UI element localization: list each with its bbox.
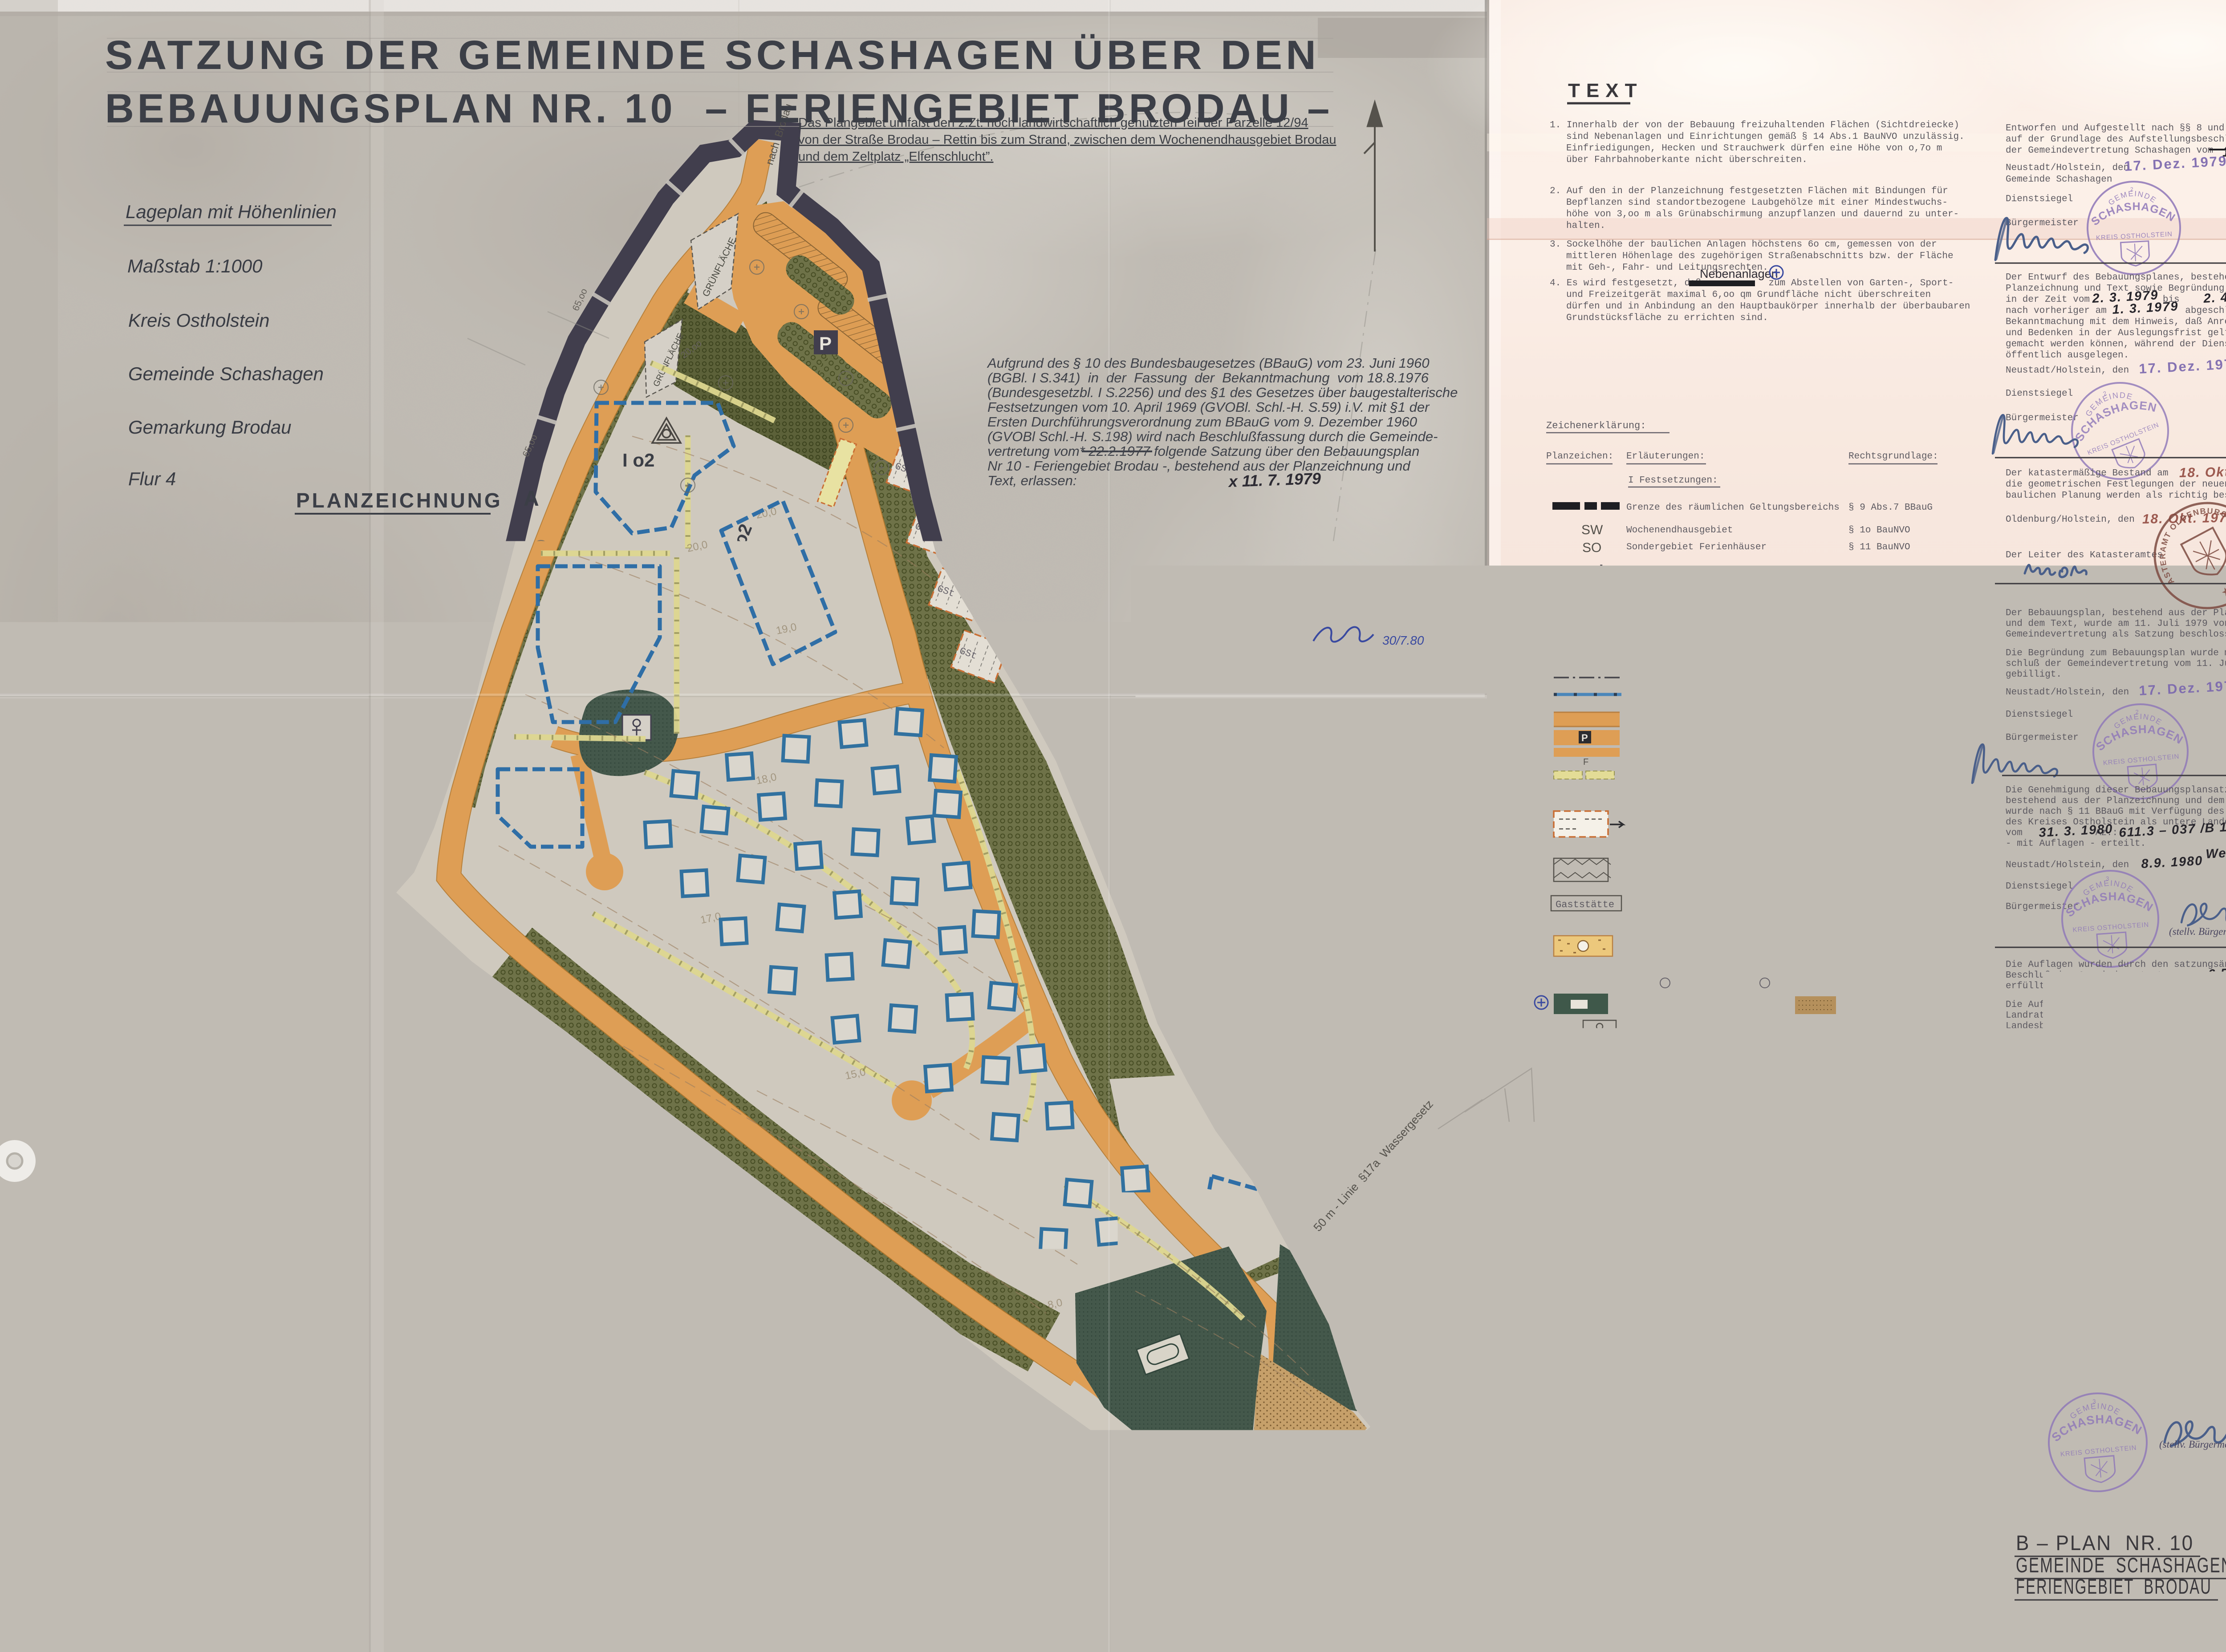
svg-text:von der Straße Brodau – Rettin: von der Straße Brodau – Rettin bis zum S… bbox=[798, 133, 1336, 147]
svg-text:III Darstellungen ohne Normcha: III Darstellungen ohne Normcharakter: bbox=[1627, 1319, 1835, 1329]
svg-text:§ 16 BauNVO: § 16 BauNVO bbox=[1848, 580, 1910, 590]
svg-text:7: 7 bbox=[725, 1181, 731, 1193]
svg-text:Gemeinde Schashagen: Gemeinde Schashagen bbox=[2006, 1189, 2112, 1200]
svg-text:FERIENGEBIET BRODAU: FERIENGEBIET BRODAU bbox=[2016, 1575, 2212, 1598]
svg-text:Straßenverkehrsfläche: Straßenverkehrsfläche bbox=[1626, 715, 1744, 725]
svg-text:12: 12 bbox=[914, 1309, 926, 1321]
svg-text:II Kennzeichnungen und nachric: II Kennzeichnungen und nachrichtliche Üb… bbox=[1627, 1243, 1902, 1254]
svg-text:FESTSETZUNG IM B-PLAN NR.6: FESTSETZUNG IM B-PLAN NR.6 bbox=[539, 1050, 728, 1064]
svg-text:3,5o: 3,5o bbox=[791, 1500, 808, 1510]
svg-text:Gemeinde Schashagen: Gemeinde Schashagen bbox=[128, 363, 324, 384]
svg-text:Die Auflagenerfüllung wurde mi: Die Auflagenerfüllung wurde mit Verfügun… bbox=[2006, 1000, 2226, 1010]
svg-text:§ 9 Abs.1 (24)BBauG: § 9 Abs.1 (24)BBauG bbox=[1848, 865, 1955, 875]
svg-text:63: 63 bbox=[451, 949, 463, 961]
svg-text:- mit Auflagen - erteilt.: - mit Auflagen - erteilt. bbox=[2006, 839, 2146, 849]
svg-text:§ 9 Abs.1 (25)BBauG: § 9 Abs.1 (25)BBauG bbox=[1848, 1078, 1955, 1088]
svg-text:5o: 5o bbox=[703, 1423, 711, 1432]
svg-text:§ 9 Abs.1 (14)BBauG: § 9 Abs.1 (14)BBauG bbox=[1848, 938, 1955, 949]
svg-text:6: 6 bbox=[661, 1130, 666, 1142]
svg-text:Der Leiter des Katasteramtes: Der Leiter des Katasteramtes bbox=[2006, 550, 2163, 560]
svg-text:Bäume zu pflanzen: Bäume zu pflanzen bbox=[1626, 1106, 1722, 1116]
svg-text:C: C bbox=[530, 1482, 546, 1506]
svg-text:I o GR 60 qm: I o GR 60 qm bbox=[993, 1138, 1121, 1163]
svg-text:§ 9 Abs.1 (11)BBauG: § 9 Abs.1 (11)BBauG bbox=[1848, 817, 1955, 828]
svg-text:112: 112 bbox=[851, 803, 868, 815]
svg-text:4,8o: 4,8o bbox=[716, 1599, 726, 1617]
svg-text:Neustadt/Holstein, den: Neustadt/Holstein, den bbox=[2006, 1178, 2129, 1188]
svg-text:I: I bbox=[1599, 562, 1603, 579]
svg-text:und Bedenken in der Auslegungs: und Bedenken in der Auslegungsfrist gelt… bbox=[2006, 328, 2226, 338]
svg-text:Nebenanlagen: Nebenanlagen bbox=[1700, 267, 1778, 280]
svg-text:gemacht werden können, während: gemacht werden können, während der Diens… bbox=[2006, 339, 2226, 349]
svg-text:Bekanntmachung mit dem Hinweis: Bekanntmachung mit dem Hinweis, daß Anre… bbox=[2006, 317, 2226, 327]
svg-text:12: 12 bbox=[449, 934, 461, 946]
svg-text:Dienstsiegel: Dienstsiegel bbox=[2006, 881, 2073, 892]
svg-text:(bepflanzter Lärmschutzwall): (bepflanzter Lärmschutzwall) bbox=[1626, 1142, 1783, 1153]
svg-text:§ 22 BauNVO: § 22 BauNVO bbox=[1848, 647, 1910, 658]
svg-text:Baulinien: Baulinien bbox=[1626, 673, 1677, 683]
svg-text:zugunsten der Anlieger zu bela: zugunsten der Anlieger zu belastende bbox=[1626, 783, 1828, 793]
svg-text:und dem Text, wurde am 11. Jul: und dem Text, wurde am 11. Juli 1979 von… bbox=[2006, 619, 2226, 629]
svg-text:§ 1o BauNVO: § 1o BauNVO bbox=[1848, 597, 1910, 607]
svg-text:GR 6O qm: GR 6O qm bbox=[1570, 597, 1621, 609]
svg-text:erfordert wird: erfordert wird bbox=[1626, 922, 1705, 933]
svg-text:B – PLAN NR. 10: B – PLAN NR. 10 bbox=[2016, 1531, 2194, 1555]
svg-text:Neustadt/Holstein, den: Neustadt/Holstein, den bbox=[2006, 1051, 2129, 1062]
svg-text:TENNISPLATZ: TENNISPLATZ bbox=[1073, 1384, 1187, 1399]
svg-text:15o: 15o bbox=[565, 1423, 580, 1432]
svg-text:Ersten Durchführungsverordnung: Ersten Durchführungsverordnung zum BBauG… bbox=[987, 414, 1417, 430]
svg-text:Gemarkung Brodau: Gemarkung Brodau bbox=[128, 417, 292, 438]
svg-text:§ 23 BauNVO: § 23 BauNVO bbox=[1848, 682, 1910, 692]
svg-text:Die Begründung zum Bebauungspl: Die Begründung zum Bebauungsplan wurde m… bbox=[2006, 648, 2226, 658]
svg-text:A: A bbox=[529, 1340, 545, 1364]
svg-text:3: 3 bbox=[1327, 1466, 1333, 1478]
svg-text:Grünflächen: Grünflächen bbox=[1626, 1000, 1688, 1010]
svg-text:§ 9 Abs.1 (25)BBauG: § 9 Abs.1 (25)BBauG bbox=[1848, 1106, 1955, 1116]
svg-text:P: P bbox=[819, 333, 832, 354]
svg-text:4,5o: 4,5o bbox=[625, 1495, 642, 1505]
svg-text:5o: 5o bbox=[602, 1351, 611, 1360]
svg-text:erfüllt.: erfüllt. bbox=[2006, 981, 2051, 991]
svg-text:Die Bebauungsplansatzung, best: Die Bebauungsplansatzung, bestehend aus … bbox=[2006, 1154, 2226, 1164]
svg-text:Nr 10 - Feriengebiet Brodau -,: Nr 10 - Feriengebiet Brodau -, bestehend… bbox=[987, 458, 1411, 474]
svg-text:GASTSTÄTTE: GASTSTÄTTE bbox=[1179, 1246, 1262, 1259]
svg-text:SO: SO bbox=[562, 572, 629, 642]
svg-text:sind Nebenanlagen und Einricht: sind Nebenanlagen und Einrichtungen gemä… bbox=[1566, 132, 1965, 142]
svg-text:wurde nach § 11 BBauG mit Verf: wurde nach § 11 BBauG mit Verfügung des … bbox=[2006, 807, 2226, 817]
svg-text:I o2: I o2 bbox=[1221, 1205, 1251, 1225]
svg-text:8: 8 bbox=[787, 1228, 793, 1240]
svg-text:A: A bbox=[524, 487, 539, 511]
svg-text:(stellv. Bürgermeister): (stellv. Bürgermeister) bbox=[2169, 926, 2226, 937]
svg-text:die geometrischen Festlegungen: die geometrischen Festlegungen der neuen… bbox=[2006, 479, 2226, 490]
svg-text:FERIENHÄUSER: FERIENHÄUSER bbox=[556, 654, 672, 669]
svg-text:Neustadt/Holstein, den: Neustadt/Holstein, den bbox=[2006, 163, 2129, 173]
svg-text:12: 12 bbox=[722, 1167, 734, 1179]
svg-text:P: P bbox=[1581, 732, 1588, 743]
svg-text:Bürgermeister: Bürgermeister bbox=[2006, 733, 2079, 743]
svg-text:We|Ko: We|Ko bbox=[2206, 845, 2226, 861]
svg-text:PLANZEICHNUNG: PLANZEICHNUNG bbox=[296, 489, 503, 512]
svg-text:vorhandene Grundstücksgrenzen: vorhandene Grundstücksgrenzen bbox=[1625, 1364, 1788, 1374]
svg-text:halten.: halten. bbox=[1566, 221, 1605, 231]
svg-text:und dem Zeltplatz „Elfenschluc: und dem Zeltplatz „Elfenschlucht”. bbox=[798, 150, 993, 164]
svg-text:(stellv. Bürgermeister): (stellv. Bürgermeister) bbox=[2153, 1115, 2226, 1126]
svg-text:12: 12 bbox=[585, 1058, 597, 1070]
svg-text:F: F bbox=[1583, 757, 1588, 767]
svg-text:7,5o: 7,5o bbox=[624, 1509, 642, 1518]
svg-text:11: 11 bbox=[916, 1323, 927, 1335]
svg-text:Sichtdreieck: Sichtdreieck bbox=[1625, 1454, 1693, 1464]
svg-text:auf der Grundlage des Aufstell: auf der Grundlage des Aufstellungsbeschl… bbox=[2006, 134, 2226, 145]
svg-text:Dienstsiegel: Dienstsiegel bbox=[2006, 710, 2073, 720]
svg-text:§ 9 Abs.1 (9) BBauG: § 9 Abs.1 (9) BBauG bbox=[1848, 911, 1955, 921]
svg-text:7,5o: 7,5o bbox=[664, 1353, 682, 1363]
svg-text:Neustadt/Holstein, den: Neustadt/Holstein, den bbox=[2006, 860, 2129, 870]
svg-text:≥ 2ooo qm: ≥ 2ooo qm bbox=[1191, 1264, 1235, 1275]
svg-text:Ausgefertigt. Oldenburg i.H.,: Ausgefertigt. Oldenburg i.H., den 12.1.7… bbox=[199, 1338, 447, 1353]
svg-text:Katasteramt: Katasteramt bbox=[257, 1368, 325, 1382]
svg-text:12: 12 bbox=[989, 1456, 1001, 1468]
svg-text:4: 4 bbox=[588, 1072, 594, 1084]
svg-text:in Aussicht genommene Zuschnit: in Aussicht genommene Zuschnitte der Bau… bbox=[1625, 1378, 1912, 1388]
svg-text:Bürgermeister: Bürgermeister bbox=[2006, 413, 2079, 423]
svg-text:I o2: I o2 bbox=[510, 791, 541, 811]
svg-text:Gaststätte: Gaststätte bbox=[1556, 899, 1614, 910]
svg-text:5o m - Linie gemäß § 17a Wasse: 5o m - Linie gemäß § 17a Wassergesetz (E… bbox=[1631, 1270, 1984, 1280]
svg-text:(BGBl. I S.341) in der Fass: (BGBl. I S.341) in der Fassung der Bekan… bbox=[987, 370, 1429, 386]
svg-text:vertretung vom* 22.2.1977 folg: vertretung vom* 22.2.1977 folgende Satzu… bbox=[987, 443, 1419, 459]
svg-text:I o2: I o2 bbox=[622, 450, 654, 471]
svg-text:12: 12 bbox=[532, 1018, 544, 1030]
svg-text:Abgrenzung unterschiedlicher N: Abgrenzung unterschiedlicher Nutzung bbox=[1626, 1166, 1828, 1177]
svg-text:(M) Müllboxen (T) Trafosta: (M) Müllboxen (T) Trafostation bbox=[1656, 979, 1846, 990]
svg-text:Planzeichen:: Planzeichen: bbox=[1546, 451, 1613, 462]
svg-text:offene Bauweise: offene Bauweise bbox=[1626, 636, 1710, 646]
svg-text:mit der bewirkten Bekanntmachu: mit der bewirkten Bekanntmachung der Gen… bbox=[2006, 1315, 2226, 1325]
svg-text:1: 1 bbox=[1352, 231, 1357, 243]
svg-text:F: F bbox=[778, 1481, 785, 1493]
svg-text:3: 3 bbox=[535, 1032, 540, 1044]
svg-text:9: 9 bbox=[852, 1277, 858, 1289]
svg-text:Dienstsiegel: Dienstsiegel bbox=[2006, 1213, 2073, 1223]
svg-text:Gemeinde Schashagen: Gemeinde Schashagen bbox=[2006, 175, 2112, 185]
svg-text:Dienstsiegel: Dienstsiegel bbox=[2006, 194, 2073, 204]
svg-text:Flächen für Stellplätze oder G: Flächen für Stellplätze oder Garagen bbox=[1626, 817, 1828, 828]
svg-text:§ 9 Abs.1 (11)BBauG: § 9 Abs.1 (11)BBauG bbox=[1848, 732, 1955, 742]
svg-text:bestätigt.: bestätigt. bbox=[2006, 1032, 2062, 1042]
svg-text:Böschung: Böschung bbox=[1625, 1420, 1670, 1430]
svg-text:18. Okt. 1979: 18. Okt. 1979 bbox=[2179, 464, 2226, 480]
svg-text:Flur 4: Flur 4 bbox=[128, 468, 176, 489]
svg-text:Sondergebiet Ferienhäuser: Sondergebiet Ferienhäuser bbox=[1626, 542, 1767, 552]
svg-text:Kreis Ostholstein: Kreis Ostholstein bbox=[128, 310, 269, 331]
svg-text:HINWEIS: 10-m SCHUTZPLANZUNG: HINWEIS: 10-m SCHUTZPLANZUNG bbox=[480, 1031, 694, 1044]
svg-text:12: 12 bbox=[1580, 1436, 1588, 1445]
svg-text:Grenze des räumlichen Geltungs: Grenze des räumlichen Geltungsbereichs bbox=[1626, 503, 1840, 513]
svg-text:1,5o: 1,5o bbox=[565, 1496, 582, 1505]
svg-text:3. Sockelhöhe der baulichen An: 3. Sockelhöhe der baulichen Anlagen höch… bbox=[1550, 239, 1937, 250]
svg-text:mittleren Höhenlage des zugehö: mittleren Höhenlage des zugehörigen Stra… bbox=[1566, 251, 1954, 261]
svg-text:1: 1 bbox=[451, 639, 457, 651]
svg-text:St Stellplätze: St Stellplätze bbox=[1626, 845, 1716, 855]
svg-text:gebilligt.: gebilligt. bbox=[2006, 670, 2062, 680]
svg-text:(Anpflanzungs- bzw. Erhaltungs: (Anpflanzungs- bzw. Erhaltungsgebot) bbox=[1626, 1078, 1828, 1088]
svg-text:SW: SW bbox=[1581, 523, 1603, 537]
svg-text:Wochenendhausgebiet: Wochenendhausgebiet bbox=[1626, 525, 1733, 536]
svg-text:I o GR 60 qm: I o GR 60 qm bbox=[875, 855, 1006, 880]
svg-text:Nutzungszweck von Flächen, der: Nutzungszweck von Flächen, der durch bbox=[1626, 899, 1828, 909]
svg-text:12,oo: 12,oo bbox=[656, 1366, 678, 1376]
svg-text:Aufgrund des § 10 des Bundesba: Aufgrund des § 10 des Bundesbaugesetzes … bbox=[987, 355, 1430, 371]
svg-text:12: 12 bbox=[784, 1214, 796, 1226]
svg-text:Beschluß der Gemeindevertretun: Beschluß der Gemeindevertretung vom bbox=[2006, 970, 2202, 981]
svg-text:GSt Gemeinschaftsstellplätze: GSt Gemeinschaftsstellplätze bbox=[1626, 833, 1789, 844]
svg-text:16: 16 bbox=[449, 625, 461, 637]
svg-text:bestehend aus der Planzeichnun: bestehend aus der Planzeichnung und dem … bbox=[2006, 796, 2226, 806]
svg-text:Festsetzungen vom 10. April 19: Festsetzungen vom 10. April 1969 (GVOBl.… bbox=[987, 399, 1430, 415]
svg-text:Die Genehmigung dieser Bebauun: Die Genehmigung dieser Bebauungsplansatz… bbox=[2006, 785, 2226, 796]
svg-text:Sportplatz: Sportplatz bbox=[1686, 1047, 1742, 1057]
svg-text:SO: SO bbox=[1582, 540, 1601, 555]
svg-text:Das Plangebiet umfaßt den z.Zt: Das Plangebiet umfaßt den z.Zt. noch lan… bbox=[798, 116, 1308, 130]
svg-text:Minigolfplatz: Minigolfplatz bbox=[1028, 1445, 1101, 1459]
svg-text:sowie des Ortes und der Zeit d: sowie des Ortes und der Zeit der Auslegu… bbox=[2006, 1326, 2226, 1336]
svg-text:Fläche für Aufschüttungen: Fläche für Aufschüttungen bbox=[1626, 1131, 1767, 1141]
svg-text:AMT NEUSTADT-LAND: AMT NEUSTADT-LAND bbox=[1209, 702, 1271, 708]
svg-text:I Festsetzungen:: I Festsetzungen: bbox=[1628, 475, 1718, 486]
svg-text:Gemeinde Schashagen: Gemeinde Schashagen bbox=[2006, 1377, 2112, 1388]
svg-text:1,5o: 1,5o bbox=[681, 1496, 698, 1505]
svg-text:Neustadt/Holstein, den: Neustadt/Holstein, den bbox=[2006, 687, 2129, 698]
svg-text:12: 12 bbox=[477, 966, 489, 978]
svg-text:Fußweg: Fußweg bbox=[1626, 750, 1660, 760]
svg-text:GRUNDSTÜCKSGRÖSSE: GRUNDSTÜCKSGRÖSSE bbox=[1174, 1279, 1270, 1287]
svg-text:und Freizeitgerät maximal 6,oo: und Freizeitgerät maximal 6,oo qm Grundf… bbox=[1566, 290, 1931, 300]
svg-text:§ 9 Abs.1 (3) BBauG: § 9 Abs.1 (3) BBauG bbox=[1848, 613, 1955, 623]
svg-text:höhe von 3,oo m als Grünabschi: höhe von 3,oo m als Grünabschirmung anzu… bbox=[1566, 209, 1959, 219]
svg-text:2,oo: 2,oo bbox=[571, 1353, 588, 1363]
svg-text:C: C bbox=[733, 758, 747, 780]
svg-text:x 11. 7. 1979: x 11. 7. 1979 bbox=[1227, 469, 1321, 491]
svg-text:(GVOBl Schl.-H. S.198) wird na: (GVOBl Schl.-H. S.198) wird nach Beschlu… bbox=[987, 429, 1438, 444]
svg-text:Flächen: Flächen bbox=[1626, 794, 1665, 804]
svg-text:Entworfen und Aufgestellt nach: Entworfen und Aufgestellt nach §§ 8 und … bbox=[2006, 123, 2226, 134]
svg-text:von der Bebauung freizuhaltend: von der Bebauung freizuhaltende bbox=[1626, 865, 1800, 875]
svg-text:Bürgermeister: Bürgermeister bbox=[2006, 218, 2079, 228]
svg-text:oder für die Verwertung oder B: oder für die Verwertung oder Beseitigung bbox=[1626, 950, 1851, 960]
svg-text:11: 11 bbox=[1349, 217, 1360, 229]
svg-text:Einfriedigungen, Hecken und St: Einfriedigungen, Hecken und Strauchwerk … bbox=[1566, 143, 1942, 154]
svg-text:Strand: Strand bbox=[1843, 1001, 1881, 1014]
svg-text:5,5o: 5,5o bbox=[638, 1422, 655, 1432]
svg-text:Grundstücksfläche zu errichten: Grundstücksfläche zu errichten sind. bbox=[1566, 313, 1768, 323]
svg-text:7,5o: 7,5o bbox=[629, 1436, 646, 1445]
svg-text:Gebühren. 60,00 DM: Gebühren. 60,00 DM bbox=[204, 1517, 321, 1530]
svg-text:Der Bebauungsplan, bestehend a: Der Bebauungsplan, bestehend aus der Pla… bbox=[2006, 608, 2226, 618]
svg-text:M. 1: 200: M. 1: 200 bbox=[757, 1289, 831, 1308]
svg-text:Flächen für die Versorgungsanl: Flächen für die Versorgungsanlagen bbox=[1626, 938, 1817, 949]
svg-text:Regierungsvermessungsamtmann: Regierungsvermessungsamtmann bbox=[206, 1445, 395, 1459]
svg-text:KREIS OSTHOLSTEIN: KREIS OSTHOLSTEIN bbox=[1211, 735, 1271, 741]
svg-text:2: 2 bbox=[480, 980, 486, 992]
svg-text:12: 12 bbox=[658, 1116, 670, 1128]
svg-text:von Abwasser oder festen Abfal: von Abwasser oder festen Abfallstoffen bbox=[1626, 962, 1840, 972]
svg-text:2. Auf den in der Planzeichnun: 2. Auf den in der Planzeichnung festgese… bbox=[1550, 186, 1948, 196]
svg-text:2,oo: 2,oo bbox=[747, 1353, 764, 1363]
svg-text:(privates Grün): (privates Grün) bbox=[1626, 1090, 1710, 1100]
svg-text:Höhenlinien: Höhenlinien bbox=[1625, 1402, 1687, 1413]
svg-text:Die Auflagen wurden durch den: Die Auflagen wurden durch den satzungsän… bbox=[2006, 960, 2226, 970]
svg-text:C: C bbox=[924, 1111, 938, 1132]
svg-text:Grundfläche der Wochenendhäuse: Grundfläche der Wochenendhäuser bbox=[1626, 597, 1800, 607]
svg-text:SW: SW bbox=[1023, 1162, 1089, 1211]
svg-text:öffentliche Parkfläche: öffentliche Parkfläche bbox=[1626, 732, 1750, 742]
svg-text:§ 9 Abs.1 (17)BBauG: § 9 Abs.1 (17)BBauG bbox=[1848, 1131, 1955, 1141]
svg-text:Gebührenbuch Ia |1973: Gebührenbuch Ia |1973 bbox=[204, 1553, 349, 1567]
svg-text:§ 11 BauNVO: § 11 BauNVO bbox=[1848, 542, 1910, 552]
svg-text:mit Geh-, Fahr- und Leitungsre: mit Geh-, Fahr- und Leitungsrechten bbox=[1626, 771, 1823, 781]
svg-text:Zeichenerklärung:: Zeichenerklärung: bbox=[1546, 420, 1646, 431]
svg-text:Dienstsiegel: Dienstsiegel bbox=[2006, 389, 2073, 399]
svg-text:Zahl der Vollgeschosse (Höchst: Zahl der Vollgeschosse (Höchstgrenze) bbox=[1626, 565, 1834, 576]
svg-text:o2: o2 bbox=[1593, 578, 1606, 591]
svg-text:öffentlich ausgelegen.: öffentlich ausgelegen. bbox=[2006, 350, 2129, 361]
svg-text:30/7.80: 30/7.80 bbox=[1382, 633, 1424, 647]
svg-text:Der Entwurf des Bebauungsplane: Der Entwurf des Bebauungsplanes, bestehe… bbox=[2006, 272, 2226, 283]
svg-text:92: 92 bbox=[992, 1470, 1004, 1482]
svg-text:Text, erlassen:: Text, erlassen: bbox=[987, 473, 1076, 488]
svg-text:Begründung auf Dauer öffentlic: Begründung auf Dauer öffentlich aus. bbox=[2006, 1347, 2208, 1357]
svg-text:nur Hausgruppen zulässig: nur Hausgruppen zulässig bbox=[1626, 655, 1761, 666]
svg-text:(Bundesgesetzbl. I S.2256) und: (Bundesgesetzbl. I S.2256) und des §1 de… bbox=[987, 385, 1458, 400]
svg-text:der Gemeindevertretung Schasha: der Gemeindevertretung Schashagen vom 3.… bbox=[2006, 146, 2226, 156]
svg-text:SW: SW bbox=[810, 883, 881, 930]
svg-text:25.11.75 geändert : 22. 2.: 25.11.75 geändert : 22. 2. 77 ; 2.10.78 bbox=[37, 1621, 360, 1640]
svg-text:§ 1o BauNVO: § 1o BauNVO bbox=[1848, 525, 1910, 536]
svg-text:und ihre Nutzung: und ihre Nutzung bbox=[1737, 874, 1825, 886]
svg-text:Grundstücksfläche: Grundstücksfläche bbox=[1626, 876, 1722, 886]
svg-text:Nr. der Grundstücke im Plan: Nr. der Grundstücke im Plan bbox=[1625, 1436, 1777, 1446]
svg-text:Gemeindevertretung als Satzung: Gemeindevertretung als Satzung beschloss… bbox=[2006, 629, 2226, 640]
svg-text:≥ 2·000 qm: ≥ 2·000 qm bbox=[1560, 613, 1614, 625]
svg-text:besondere städtebauliche Gründ: besondere städtebauliche Gründe bbox=[1626, 911, 1800, 921]
svg-text:§ 9 Abs.7 BBauG: § 9 Abs.7 BBauG bbox=[1848, 503, 1933, 513]
svg-text:LÄRMSCHUTZWALL: LÄRMSCHUTZWALL bbox=[560, 1528, 743, 1548]
svg-text:12: 12 bbox=[848, 788, 860, 800]
svg-text:§ 9 Abs.1 (1) BBauG: § 9 Abs.1 (1) BBauG bbox=[1848, 565, 1955, 576]
svg-text:zeichnung und dem Text, ist am: zeichnung und dem Text, ist am bbox=[2006, 1304, 2174, 1315]
svg-text:SATZUNG DER GEMEINDE SCHASHAGE: SATZUNG DER GEMEINDE SCHASHAGEN ÜBER DEN bbox=[105, 32, 1320, 78]
svg-text:I.A.: I.A. bbox=[272, 1391, 288, 1403]
svg-text:verbindlich geworden und liegt: verbindlich geworden und liegt zusammen … bbox=[2006, 1336, 2226, 1347]
svg-text:D: D bbox=[742, 1482, 757, 1506]
svg-text:6,oo: 6,oo bbox=[614, 1631, 632, 1640]
svg-text:12: 12 bbox=[849, 1263, 861, 1275]
svg-text:Fläche mit Bindungen für Bepfl: Fläche mit Bindungen für Bepflanzen bbox=[1626, 1067, 1823, 1077]
svg-text:dürfen und in Anbindung an den: dürfen und in Anbindung an den Hauptbauk… bbox=[1566, 301, 1970, 312]
svg-text:Lageplan mit Höhenlinien: Lageplan mit Höhenlinien bbox=[126, 201, 337, 222]
svg-text:B: B bbox=[879, 625, 895, 648]
svg-text:Neustadt/Holstein, den: Neustadt/Holstein, den bbox=[2006, 365, 2129, 376]
svg-text:GEMEINDE SCHASHAGEN: GEMEINDE SCHASHAGEN bbox=[2016, 1553, 2226, 1577]
svg-text:15: 15 bbox=[1324, 1452, 1336, 1464]
svg-text:Bepflanzen sind standortbezoge: Bepflanzen sind standortbezogene Laubgeh… bbox=[1566, 198, 1948, 208]
svg-text:1. Innerhalb der von der Bebau: 1. Innerhalb der von der Bebauung freizu… bbox=[1550, 120, 1959, 130]
svg-text:§ 9 Abs.1 (21)BBauG: § 9 Abs.1 (21)BBauG bbox=[1848, 783, 1955, 793]
svg-text:(stellv. Bürgermeister): (stellv. Bürgermeister) bbox=[2177, 1253, 2226, 1264]
svg-text:Baugrenzen: Baugrenzen bbox=[1626, 690, 1682, 700]
svg-text:Kinderspielplatz: Kinderspielplatz bbox=[1686, 1025, 1776, 1035]
svg-text:baulichen Planung werden als r: baulichen Planung werden als richtig bes… bbox=[2006, 491, 2226, 501]
svg-text:Neustadt/Holstein, den: Neustadt/Holstein, den bbox=[2006, 1366, 2129, 1376]
svg-text:Parkanlage: Parkanlage bbox=[1801, 1047, 1857, 1057]
svg-text:Oldenburg/Holstein, den: Oldenburg/Holstein, den bbox=[2006, 515, 2135, 525]
svg-text:Maßstab 1:1000: Maßstab 1:1000 bbox=[127, 256, 263, 276]
svg-text:schluß der Gemeindevertretung: schluß der Gemeindevertretung vom 11. Ju… bbox=[2006, 659, 2226, 669]
svg-text:B: B bbox=[530, 1411, 545, 1435]
svg-text:(stellv. Bürgermeister): (stellv. Bürgermeister) bbox=[2159, 1439, 2226, 1450]
svg-text:Grundflächenzahl: Grundflächenzahl bbox=[1626, 580, 1716, 590]
svg-text:TEXT: TEXT bbox=[1568, 80, 1643, 101]
svg-text:über Fahrbahnoberkante nicht ü: über Fahrbahnoberkante nicht überschreit… bbox=[1566, 155, 1808, 165]
svg-text:§ 16 Abs.4 BauNVO: § 16 Abs.4 BauNVO bbox=[1848, 1166, 1944, 1177]
svg-text:Erläuterungen:: Erläuterungen: bbox=[1626, 451, 1705, 462]
svg-text:STRASSENPROFILE: STRASSENPROFILE bbox=[560, 1289, 746, 1308]
svg-text:Mindestgröße eines Baugrundstü: Mindestgröße eines Baugrundstücks bbox=[1626, 613, 1812, 623]
svg-text:Rechtsgrundlage:: Rechtsgrundlage: bbox=[1848, 451, 1938, 462]
